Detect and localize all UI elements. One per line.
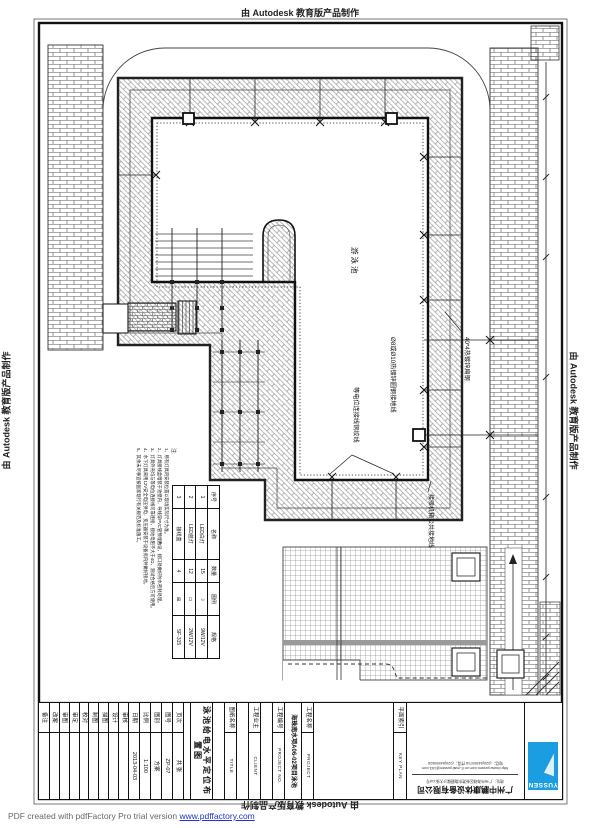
fixture-symbol: ▭ — [185, 582, 196, 615]
notes-block: 注: 1、所有灯具的安装位置以现场实际尺寸为准。 2、灯具接线盒暗装于池壁内，导… — [135, 448, 177, 611]
company-logo: YUSSEN — [528, 742, 558, 790]
annotation-flat-steel: 40*4热镀锌扁钢 — [463, 337, 471, 381]
tile-plaza — [283, 547, 524, 681]
client-cell: 工程业主 CLIENT — [248, 703, 260, 799]
svg-text:2、灯具接线盒暗装于池壁内，导线穿PVC管预埋敷设，接口处做: 2、灯具接线盒暗装于池壁内，导线穿PVC管预埋敷设，接口处做好防水密封处理。 — [156, 448, 163, 605]
page: { "banners": { "top": "由 Autodesk 教育版产品制… — [0, 0, 600, 828]
info-cell: 图号 ZP-07 — [161, 703, 172, 799]
fixture-legend-table: 序号 名称 数量 图例 规格 1 LED白灯 15 ☽ 9W/12V 2 LED… — [172, 485, 220, 659]
fixture-symbol: ⊞ — [173, 582, 184, 615]
blank-cell — [183, 703, 190, 799]
svg-text:1、所有灯具的安装位置以现场实际尺寸为准。: 1、所有灯具的安装位置以现场实际尺寸为准。 — [163, 448, 170, 536]
info-cell: 页次 共 张 — [172, 703, 183, 799]
sign-cell: 制图 — [88, 703, 98, 799]
fixture-table-row: 1 LED白灯 15 ☽ 9W/12V — [197, 486, 209, 658]
svg-text:4、水下灯具采用12V安全电压供电，变压器安装于设备房内并做: 4、水下灯具采用12V安全电压供电，变压器安装于设备房内并做好接地。 — [142, 448, 149, 587]
info-cell: 图别 方案 — [150, 703, 161, 799]
info-cell: 比例 1:100 — [139, 703, 150, 799]
logo-text: YUSSEN — [528, 781, 558, 788]
company-phone: 电话：(020)84559718 传真：(020)84559628 — [428, 760, 503, 765]
logo-swoosh-icon — [544, 753, 554, 779]
divider — [412, 774, 518, 775]
left-wall-hatch — [48, 45, 103, 350]
autodesk-banner-left: 由 Autodesk 教育版产品制作 — [0, 211, 13, 611]
autodesk-banner-right: 由 Autodesk 教育版产品制作 — [568, 211, 581, 611]
grounding-run-line — [543, 62, 549, 692]
autodesk-banner-top: 由 Autodesk 教育版产品制作 — [0, 6, 600, 19]
company-logo-cell: YUSSEN — [524, 703, 562, 799]
blank-cell — [236, 703, 248, 799]
sign-cell: 校对 — [79, 703, 89, 799]
sign-cell: 设计 — [108, 703, 118, 799]
svg-text:5、其余未尽事宜按国家现行有关规范及标准施工。: 5、其余未尽事宜按国家现行有关规范及标准施工。 — [135, 448, 142, 545]
planter-row — [103, 301, 196, 334]
drawing-title-cell: 泳池给电水平定位布置图 — [190, 703, 212, 799]
sign-cell: 审图 — [59, 703, 69, 799]
blank-cell — [260, 703, 272, 799]
project-no-cell: 工程编号 PROJECT NO. — [272, 703, 284, 799]
fixture-table-row: 2 LED蓝灯 12 ▭ 2W/12V — [185, 486, 197, 658]
project-label-cell: 工程名称 PROJECT — [301, 703, 313, 799]
company-address: 地址：广州市海珠区新港东路磨碟沙大街118号 — [426, 778, 504, 783]
pdffactory-link[interactable]: www.pdffactory.com — [179, 811, 254, 821]
pdf-footer: PDF created with pdfFactory Pro trial ve… — [8, 811, 255, 821]
pool-label: 游泳池 — [350, 247, 360, 276]
company-url: http://www.yussen.com.cn E-mail:yussen@1… — [422, 766, 509, 771]
info-cell: 日期 2013-04-03 — [128, 703, 139, 799]
keyplan-area — [313, 703, 393, 799]
annotation-junction-ground: 接驳机箱公共接地线 — [427, 494, 435, 548]
project-name-cell: 海珠南水项A06-02项目泳池 — [284, 703, 301, 799]
svg-text:3、灯具外壳均与等电位连接线可靠连接，接地电阻不大于4Ω，测: 3、灯具外壳均与等电位连接线可靠连接，接地电阻不大于4Ω，测试合格后方可使用。 — [149, 448, 156, 611]
sheet-title-cell: 图纸名称 TITLE — [224, 703, 236, 799]
sign-cell: 描图 — [98, 703, 108, 799]
sign-cell: 备注 — [39, 703, 49, 799]
sign-cell: 改案 — [49, 703, 59, 799]
company-name: 广州中鹏康体设备有限公司 — [417, 784, 513, 795]
svg-text:注:: 注: — [170, 448, 177, 454]
corner-wall-hatch — [531, 26, 559, 60]
fixture-table-header: 序号 名称 数量 图例 规格 — [208, 486, 219, 658]
company-info-cell: 广州中鹏康体设备有限公司 地址：广州市海珠区新港东路磨碟沙大街118号 http… — [406, 703, 524, 799]
sign-cell: 审定 — [69, 703, 79, 799]
annotation-ground-rod: Ø8或Ø10热镀锌圆钢接地线 — [389, 337, 397, 413]
pdf-footer-text: PDF created with pdfFactory Pro trial ve… — [8, 811, 179, 821]
annotation-equipotential: 等电位连接线铜绞线 — [352, 387, 360, 443]
fixture-symbol: ☽ — [197, 582, 208, 615]
keyplan-cell: 平面索引 KEY PLAN — [393, 703, 406, 799]
title-block: YUSSEN 广州中鹏康体设备有限公司 地址：广州市海珠区新港东路磨碟沙大街11… — [39, 703, 562, 799]
fixture-table-row: 3 接线盒 4 ⊞ SF-315 — [173, 486, 185, 658]
sign-cell: 审核 — [118, 703, 128, 799]
blank-cell — [212, 703, 224, 799]
